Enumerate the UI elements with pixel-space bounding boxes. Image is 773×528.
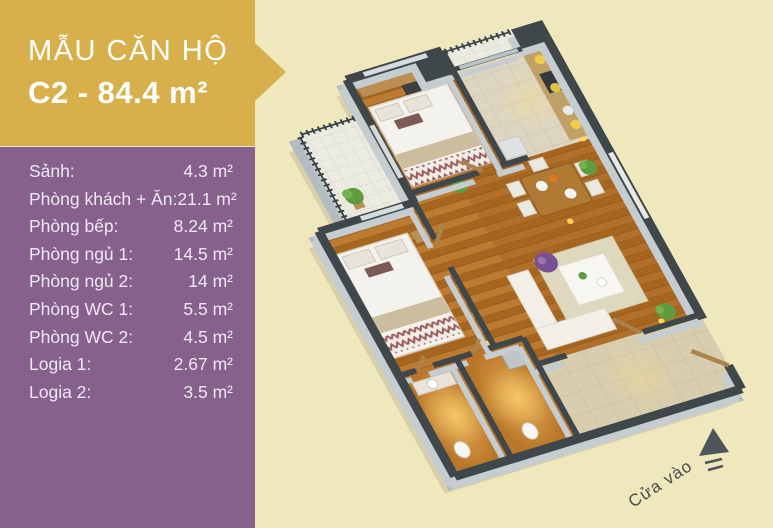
room-label: Sảnh: bbox=[29, 161, 75, 182]
room-area-panel: Sảnh: 4.3 m² Phòng khách + Ăn: 21.1 m² P… bbox=[0, 147, 255, 528]
room-value: 14 m² bbox=[188, 271, 233, 292]
room-label: Phòng ngủ 2: bbox=[29, 271, 133, 292]
room-row: Phòng WC 1: 5.5 m² bbox=[29, 299, 233, 327]
room-row: Phòng ngủ 1: 14.5 m² bbox=[29, 244, 233, 272]
entrance-arrow-icon bbox=[699, 428, 729, 456]
room-value: 2.67 m² bbox=[174, 354, 233, 375]
brochure-page: Cửa vào MẪU CĂN HỘ C2 - 84.4 m² Sảnh: 4.… bbox=[0, 0, 773, 528]
room-value: 3.5 m² bbox=[183, 382, 233, 403]
apartment-type-title: MẪU CĂN HỘ bbox=[28, 36, 255, 68]
room-row: Phòng bếp: 8.24 m² bbox=[29, 216, 233, 244]
room-row: Phòng ngủ 2: 14 m² bbox=[29, 271, 233, 299]
room-row: Logia 2: 3.5 m² bbox=[29, 382, 233, 410]
room-label: Phòng khách + Ăn: bbox=[29, 189, 177, 210]
room-value: 14.5 m² bbox=[174, 244, 233, 265]
room-row: Phòng khách + Ăn: 21.1 m² bbox=[29, 189, 233, 217]
apartment-code-area: C2 - 84.4 m² bbox=[28, 75, 255, 111]
room-label: Phòng bếp: bbox=[29, 216, 119, 237]
room-label: Logia 2: bbox=[29, 382, 91, 403]
room-row: Phòng WC 2: 4.5 m² bbox=[29, 327, 233, 355]
entrance-label: Cửa vào bbox=[625, 456, 696, 511]
room-value: 4.5 m² bbox=[183, 327, 233, 348]
room-label: Phòng WC 2: bbox=[29, 327, 133, 348]
room-label: Phòng WC 1: bbox=[29, 299, 133, 320]
room-row: Sảnh: 4.3 m² bbox=[29, 161, 233, 189]
room-value: 4.3 m² bbox=[183, 161, 233, 182]
title-banner: MẪU CĂN HỘ C2 - 84.4 m² bbox=[0, 0, 255, 146]
room-row: Logia 1: 2.67 m² bbox=[29, 354, 233, 382]
room-label: Logia 1: bbox=[29, 354, 91, 375]
room-label: Phòng ngủ 1: bbox=[29, 244, 133, 265]
room-value: 8.24 m² bbox=[174, 216, 233, 237]
room-value: 5.5 m² bbox=[183, 299, 233, 320]
room-value: 21.1 m² bbox=[177, 189, 236, 210]
banner-arrow bbox=[255, 43, 286, 101]
entrance-annotation: Cửa vào bbox=[625, 428, 729, 511]
